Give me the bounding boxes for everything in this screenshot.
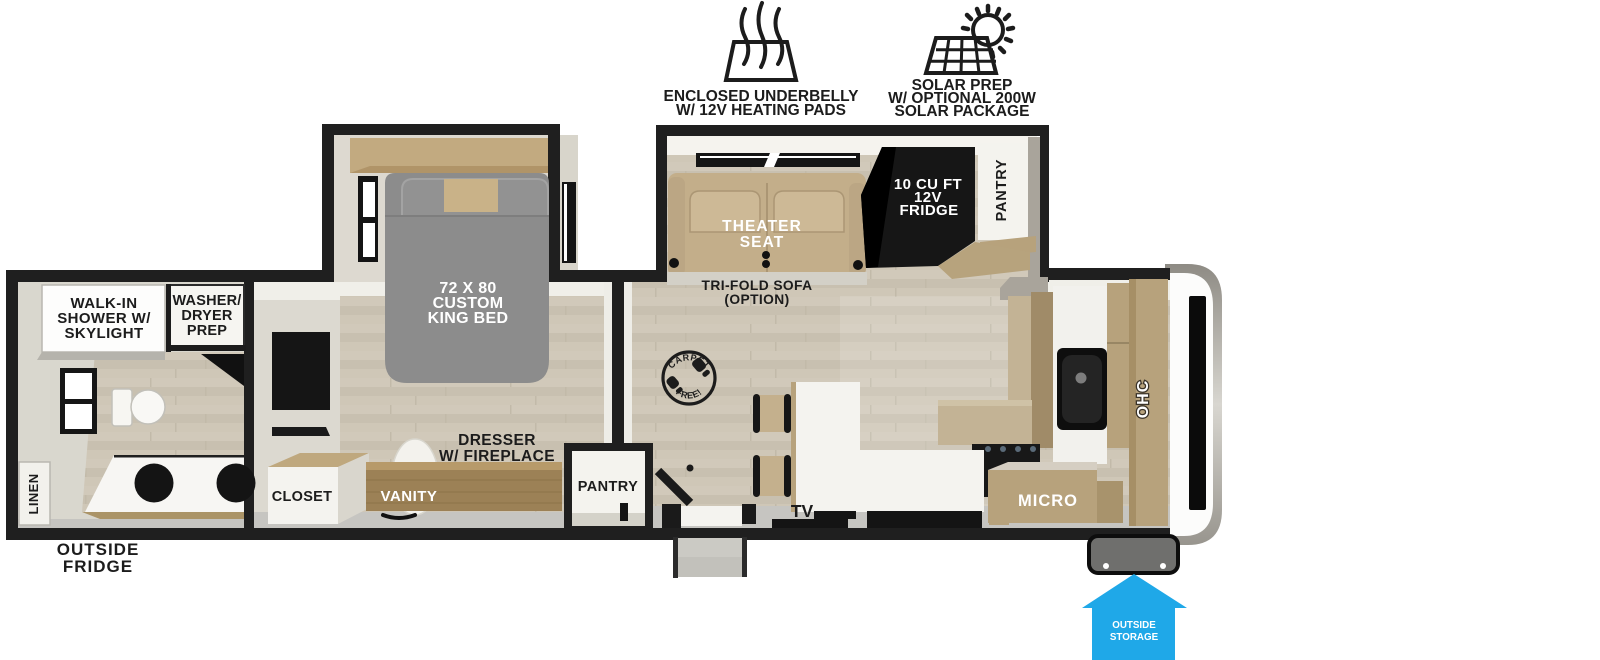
svg-text:SOLAR PACKAGE: SOLAR PACKAGE bbox=[895, 103, 1030, 120]
svg-text:FRIDGE: FRIDGE bbox=[63, 557, 133, 576]
svg-text:VANITY: VANITY bbox=[381, 488, 438, 505]
svg-text:W/ 12V HEATING PADS: W/ 12V HEATING PADS bbox=[676, 102, 846, 119]
svg-text:SEAT: SEAT bbox=[740, 234, 785, 251]
svg-text:MICRO: MICRO bbox=[1018, 492, 1078, 510]
svg-text:DRYER: DRYER bbox=[181, 308, 233, 324]
svg-text:LINEN: LINEN bbox=[26, 474, 41, 515]
svg-text:DRESSER: DRESSER bbox=[458, 432, 536, 449]
svg-text:STORAGE: STORAGE bbox=[1110, 632, 1159, 643]
svg-text:W/ FIREPLACE: W/ FIREPLACE bbox=[439, 448, 555, 465]
svg-text:(OPTION): (OPTION) bbox=[724, 292, 789, 307]
svg-text:OHC: OHC bbox=[1135, 380, 1152, 419]
svg-text:FRIDGE: FRIDGE bbox=[899, 202, 958, 219]
svg-text:PANTRY: PANTRY bbox=[994, 159, 1010, 222]
svg-text:TRI-FOLD SOFA: TRI-FOLD SOFA bbox=[702, 278, 813, 293]
svg-text:OUTSIDE: OUTSIDE bbox=[1112, 620, 1156, 631]
svg-text:SKYLIGHT: SKYLIGHT bbox=[64, 325, 143, 342]
svg-text:PREP: PREP bbox=[187, 323, 227, 339]
svg-text:THEATER: THEATER bbox=[722, 218, 802, 235]
svg-text:CLOSET: CLOSET bbox=[272, 489, 333, 505]
svg-text:WASHER/: WASHER/ bbox=[172, 293, 241, 309]
svg-text:TV: TV bbox=[791, 501, 814, 521]
svg-text:KING BED: KING BED bbox=[428, 310, 509, 327]
svg-text:PANTRY: PANTRY bbox=[578, 479, 638, 495]
